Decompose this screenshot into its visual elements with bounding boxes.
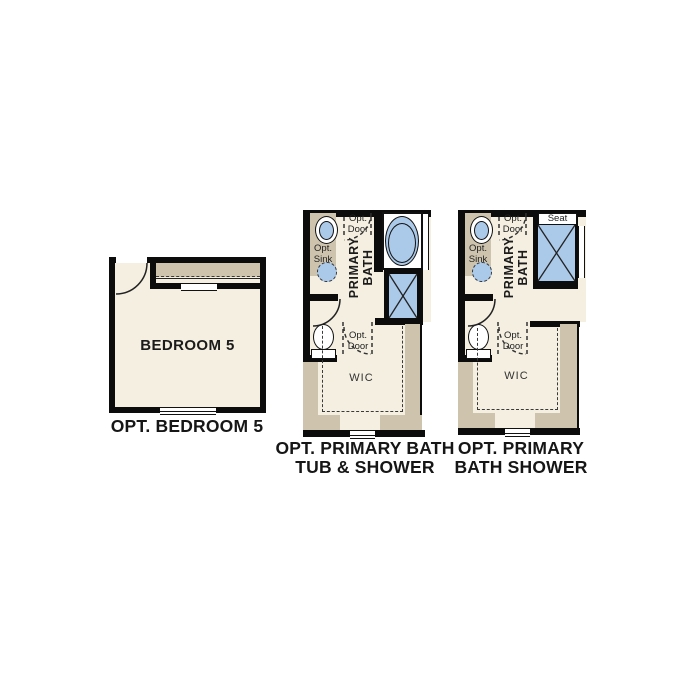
room-label-primary-bath: PRIMARY BATH xyxy=(347,228,377,306)
wic-label: WIC xyxy=(318,372,405,384)
floorplan-bedroom5: BEDROOM 5 xyxy=(109,257,266,413)
shower xyxy=(538,225,575,281)
sink-basin xyxy=(319,221,334,240)
wic-dashed-outline xyxy=(477,328,558,410)
closet-rod xyxy=(156,278,260,279)
door-opening xyxy=(116,257,147,263)
sink-basin xyxy=(474,221,489,240)
exterior xyxy=(422,322,431,437)
caption-primary-bath-tub-shower: OPT. PRIMARY BATH TUB & SHOWER xyxy=(275,439,455,477)
optional-sink xyxy=(472,262,492,282)
door-swing-arc xyxy=(109,257,266,413)
wic-dashed-outline xyxy=(322,326,403,412)
wic-entry-opening xyxy=(505,428,530,437)
shower-glass-panel xyxy=(578,226,585,278)
room-label-primary-bath: PRIMARY BATH xyxy=(502,228,532,306)
caption-primary-bath-shower: OPT. PRIMARY BATH SHOWER xyxy=(433,439,609,477)
caption-bedroom5: OPT. BEDROOM 5 xyxy=(103,417,271,436)
wall-stub xyxy=(465,294,493,301)
wall xyxy=(303,210,310,362)
wic-label: WIC xyxy=(473,370,560,382)
closet-shelf xyxy=(156,263,260,277)
floorplan-primary-bath-tub-shower: Opt. Sink Opt. Door PRIMARY BATH Opt. Do… xyxy=(303,210,431,437)
closet-opening xyxy=(181,283,217,291)
wall xyxy=(109,257,115,413)
wall xyxy=(458,210,465,362)
floorplan-primary-bath-shower: Opt. Sink Seat Opt. Door PRIMARY BATH Op… xyxy=(458,210,586,435)
bathtub-rim xyxy=(388,223,416,263)
shower xyxy=(389,274,417,318)
wall xyxy=(260,257,266,413)
tub-glass-panel xyxy=(422,214,429,270)
room-label-bedroom5: BEDROOM 5 xyxy=(109,337,266,354)
wic-floor xyxy=(495,411,535,428)
wic-floor xyxy=(340,413,380,430)
window-opening xyxy=(160,407,216,415)
shower-seat: Seat xyxy=(538,213,577,225)
wall-stub xyxy=(310,294,338,301)
optional-sink xyxy=(317,262,337,282)
wall xyxy=(577,324,579,428)
exterior xyxy=(579,322,586,435)
